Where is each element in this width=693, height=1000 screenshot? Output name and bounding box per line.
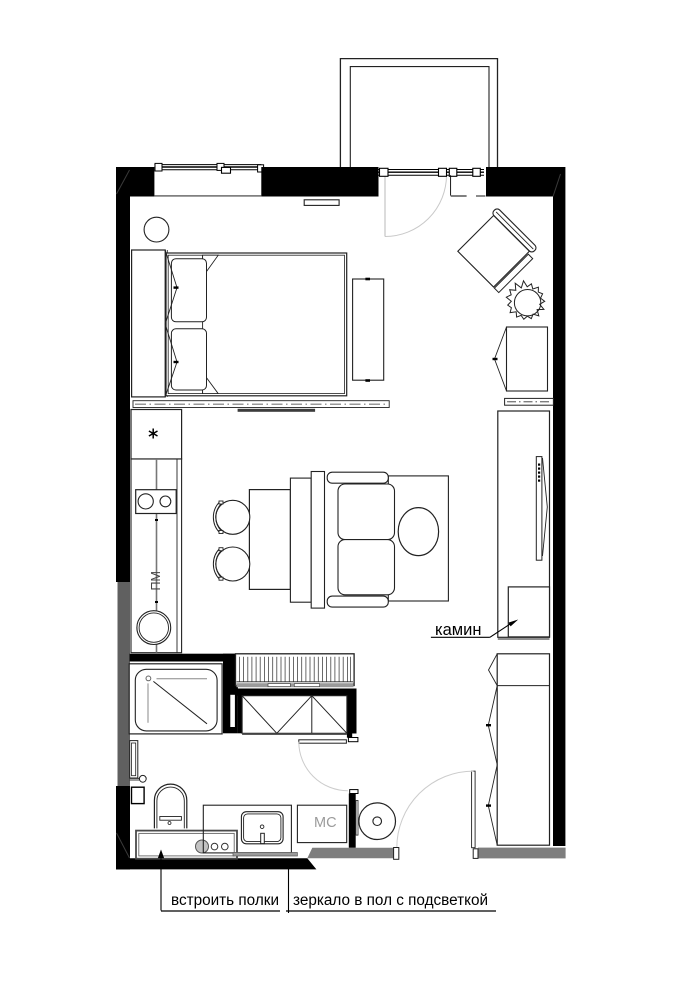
svg-text:камин: камин [435,621,481,639]
svg-text:встроить полки: встроить полки [171,892,279,909]
svg-text:МС: МС [314,815,337,831]
svg-text:зеркало в пол с подсветкой: зеркало в пол с подсветкой [293,892,488,909]
svg-text:ПМ: ПМ [149,571,163,590]
